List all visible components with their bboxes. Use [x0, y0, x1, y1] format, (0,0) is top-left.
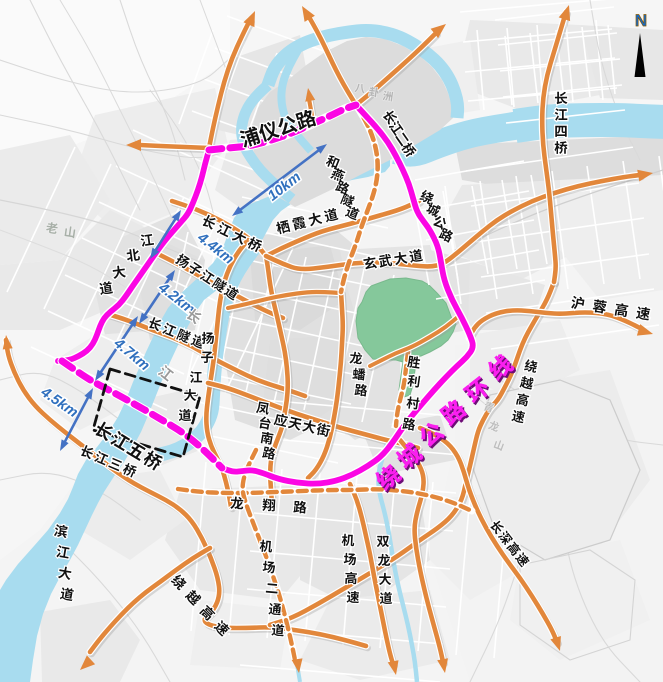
svg-text:N: N [635, 11, 647, 30]
